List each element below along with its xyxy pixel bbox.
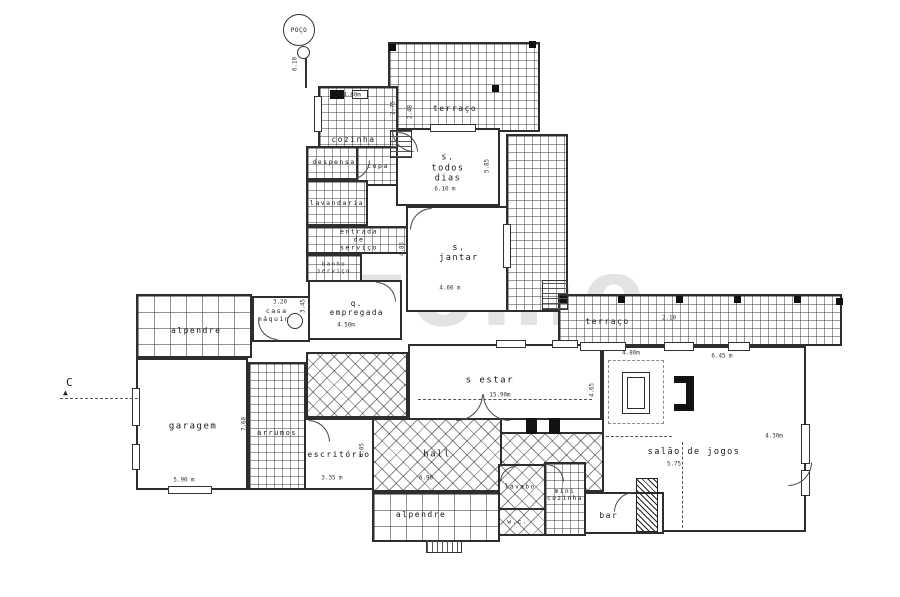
stairs-icon bbox=[390, 130, 412, 158]
well-icon: POÇO bbox=[283, 14, 315, 46]
floorplan-page: zome terraçoterraçoalpendrehallalpendrea… bbox=[0, 0, 900, 597]
dimension-label: 6.10 m bbox=[434, 186, 455, 193]
room-alpendre-bottom: alpendre bbox=[372, 492, 500, 542]
room-alpendre-left: alpendre bbox=[136, 294, 252, 358]
room-label-alpendre-bottom: alpendre bbox=[396, 510, 447, 520]
dimension-label: 4.65 bbox=[589, 383, 596, 397]
window bbox=[580, 342, 626, 351]
room-label-s-jantar: s. jantar bbox=[435, 243, 482, 263]
window bbox=[132, 444, 140, 470]
dashed-line bbox=[606, 436, 672, 437]
room-banho-servico: banho serviço bbox=[306, 254, 362, 282]
dimension-label: 15.90m bbox=[489, 392, 510, 399]
window bbox=[430, 124, 476, 132]
dimension-label: 2.10 bbox=[662, 315, 676, 322]
room-label-garagem: garagem bbox=[169, 421, 217, 432]
room-entrada-servico: entrada de serviço bbox=[306, 226, 412, 254]
room-garagem: garagem bbox=[136, 358, 248, 490]
pillar bbox=[734, 296, 741, 303]
room-label-arrumos: arrumos bbox=[257, 429, 297, 437]
dashed-line bbox=[60, 398, 138, 399]
dimension-label: 5.85 bbox=[484, 159, 491, 173]
pillar bbox=[794, 296, 801, 303]
dimension-label: 4.50m bbox=[337, 322, 355, 329]
stairs-icon bbox=[426, 540, 462, 553]
bar-counter bbox=[636, 478, 658, 532]
room-label-terraco-top: terraço bbox=[433, 105, 477, 115]
room-label-lavabo: lavabo bbox=[505, 483, 536, 490]
pillar bbox=[618, 296, 625, 303]
dimension-label: 6.90 bbox=[419, 475, 433, 482]
window bbox=[168, 486, 212, 494]
room-label-copa: copa bbox=[367, 163, 389, 171]
dashed-line bbox=[682, 442, 683, 528]
fireplace-block bbox=[330, 90, 344, 99]
dimension-label: 4.30m bbox=[765, 433, 783, 440]
section-marker: ▲ bbox=[63, 388, 68, 397]
window bbox=[664, 342, 694, 351]
pillar bbox=[676, 296, 683, 303]
room-label-wc: w.c. bbox=[507, 518, 527, 525]
machine-icon bbox=[287, 313, 303, 329]
room-label-mini-cozinha: mini cozinha bbox=[547, 488, 583, 502]
fireplace-block bbox=[526, 418, 537, 434]
pillar bbox=[529, 41, 536, 48]
room-wc: w.c. bbox=[498, 508, 546, 536]
dimension-label: 4.05 bbox=[359, 443, 366, 457]
fireplace-block bbox=[549, 418, 560, 434]
room-label-s-estar: s estar bbox=[466, 375, 514, 386]
dimension-label: 6.10 bbox=[292, 57, 299, 71]
dashed-line bbox=[418, 399, 592, 400]
pillar bbox=[492, 85, 499, 92]
window bbox=[728, 342, 750, 351]
room-label-bar: bar bbox=[599, 511, 618, 521]
window bbox=[314, 96, 322, 132]
room-hall: hall bbox=[372, 418, 502, 492]
dimension-label: 3.20 bbox=[273, 299, 287, 306]
room-label-banho-servico: banho serviço bbox=[317, 261, 351, 274]
room-label-alpendre-left: alpendre bbox=[171, 326, 222, 336]
room-label-hall: hall bbox=[423, 450, 451, 461]
dimension-label: 4.85 bbox=[399, 242, 406, 256]
dimension-label: 6.45 m bbox=[711, 353, 732, 360]
window bbox=[801, 424, 810, 464]
dimension-label: 2.48 bbox=[407, 105, 414, 119]
pillar bbox=[389, 44, 396, 51]
dimension-label: 5.90 m bbox=[173, 477, 194, 484]
window bbox=[503, 224, 511, 268]
dimension-label: 4.66 m bbox=[439, 285, 460, 292]
room-label-s-todos-dias: s. todos dias bbox=[423, 153, 473, 184]
machine-icon bbox=[297, 46, 310, 59]
room-label-terraco-right: terraço bbox=[585, 318, 629, 328]
solid-line bbox=[305, 58, 307, 88]
window bbox=[552, 340, 578, 348]
fireplace-block bbox=[686, 376, 694, 411]
window bbox=[132, 388, 140, 426]
dimension-label: 2.75 bbox=[390, 101, 397, 115]
window bbox=[496, 340, 526, 348]
pillar bbox=[836, 298, 843, 305]
guide-rect bbox=[608, 360, 664, 424]
dimension-label: 4.80m bbox=[343, 92, 361, 99]
stairs-icon bbox=[542, 280, 568, 310]
dimension-label: 4.80m bbox=[622, 350, 640, 357]
dimension-label: 5.75 bbox=[667, 461, 681, 468]
floorplan-canvas: terraçoterraçoalpendrehallalpendrearrumo… bbox=[0, 0, 900, 597]
room-label-cozinha: cozinha bbox=[331, 136, 375, 146]
room-arrumos: arrumos bbox=[248, 362, 306, 490]
dimension-label: 3.35 m bbox=[321, 475, 342, 482]
room-label-entrada-servico: entrada de serviço bbox=[334, 228, 385, 251]
room-label-salao-jogos: salão de jogos bbox=[648, 447, 741, 457]
dimension-label: 7.60 bbox=[241, 417, 248, 431]
room-lavandaria: lavandaria bbox=[306, 180, 368, 226]
room-patio-mid bbox=[306, 352, 408, 418]
room-label-lavandaria: lavandaria bbox=[310, 200, 364, 208]
dimension-label: 3.45 bbox=[300, 299, 307, 313]
